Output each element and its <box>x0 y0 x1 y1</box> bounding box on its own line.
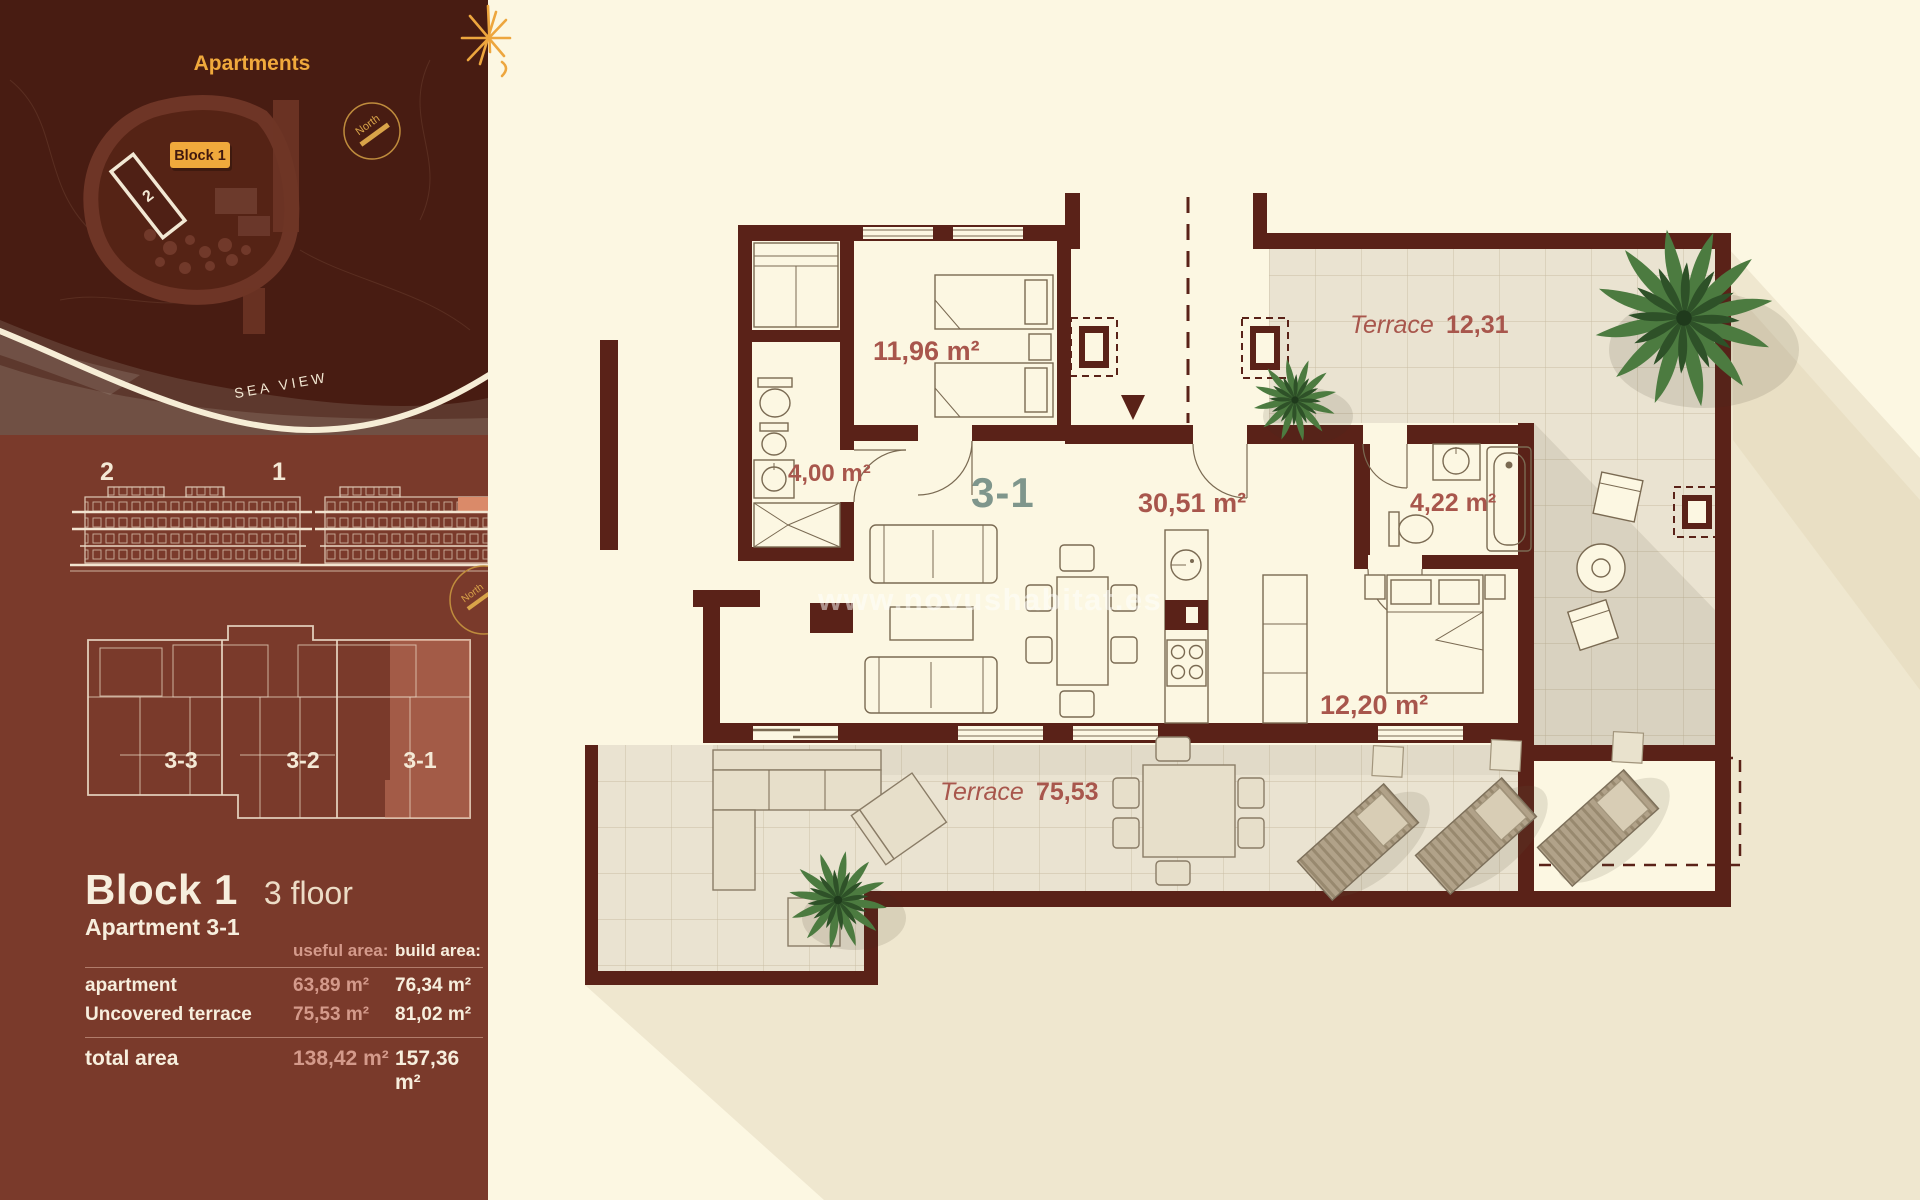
upper-terrace-area: 12,31 <box>1446 311 1509 339</box>
sidebar: 2 Block 1 North <box>0 0 488 1200</box>
north-small-label: North <box>460 582 486 605</box>
row-build-value: 81,02 m² <box>395 1004 483 1026</box>
north-compass-small-icon: North <box>450 566 488 634</box>
highlight-top-floor <box>458 497 488 511</box>
site-map-svg: 2 Block 1 North <box>0 0 488 435</box>
map-title: Apartments <box>194 52 311 75</box>
upper-terrace-name: Terrace <box>1350 311 1434 339</box>
lower-terrace-area: 75,53 <box>1036 778 1099 806</box>
floor-subtitle: 3 floor <box>264 875 353 912</box>
row-label: Uncovered terrace <box>85 1004 293 1026</box>
bedroom2-area-label: 12,20 m² <box>1320 690 1428 720</box>
table-divider-bottom <box>85 1037 483 1038</box>
total-label: total area <box>85 1047 293 1071</box>
row-build-value: 76,34 m² <box>395 975 483 997</box>
block-title: Block 1 <box>85 866 238 914</box>
elevation-1-label: 1 <box>272 458 286 486</box>
table-divider-top <box>85 967 483 968</box>
overview-unit-3-1: 3-1 <box>403 747 436 773</box>
floor-plan-panel: 11,96 m² 4,00 m² 3-1 30,51 m² 4,22 m² 12… <box>488 0 1920 1200</box>
block1-badge-label: Block 1 <box>174 148 226 164</box>
unit-number-label: 3-1 <box>971 469 1035 516</box>
total-build-value: 157,36 m² <box>395 1047 483 1095</box>
area-table: useful area: build area: apartment 63,89… <box>85 941 483 1095</box>
floor-plan-svg: 11,96 m² 4,00 m² 3-1 30,51 m² 4,22 m² 12… <box>488 0 1920 1200</box>
watermark: www.novushabitat.es <box>817 582 1162 617</box>
total-useful-value: 138,42 m² <box>293 1047 395 1071</box>
bathroom2-area-label: 4,22 m² <box>1410 489 1496 517</box>
block1-badge: Block 1 <box>170 142 232 171</box>
floor-overview-plan: 3-3 3-2 3-1 <box>88 626 470 818</box>
overview-unit-3-3: 3-3 <box>164 747 197 773</box>
unit-3-1-highlight <box>385 640 470 818</box>
table-row-apartment: apartment 63,89 m² 76,34 m² <box>85 975 483 997</box>
apartment-title: Apartment 3-1 <box>85 914 240 941</box>
row-useful-value: 75,53 m² <box>293 1004 395 1026</box>
starburst-icon <box>458 4 524 80</box>
elevation-building-1: 1 <box>272 458 488 563</box>
site-map-panel: 2 Block 1 North <box>0 0 488 435</box>
elevations-overview-svg: 2 1 <box>0 435 488 855</box>
block-floor-heading: Block 1 3 floor <box>85 866 353 914</box>
area-table-header: useful area: build area: <box>85 941 483 967</box>
bathroom1-area-label: 4,00 m² <box>788 460 871 487</box>
brochure-page: 2 Block 1 North <box>0 0 1920 1200</box>
lower-terrace-name: Terrace <box>940 778 1024 806</box>
elevation-2-label: 2 <box>100 458 114 486</box>
overview-unit-3-2: 3-2 <box>286 747 319 773</box>
bedroom1-area-label: 11,96 m² <box>873 336 980 366</box>
living-area-label: 30,51 m² <box>1138 488 1246 518</box>
useful-area-header: useful area: <box>293 941 395 961</box>
table-row-total: total area 138,42 m² 157,36 m² <box>85 1047 483 1095</box>
row-label: apartment <box>85 975 293 997</box>
row-useful-value: 63,89 m² <box>293 975 395 997</box>
table-row-terrace: Uncovered terrace 75,53 m² 81,02 m² <box>85 1004 483 1026</box>
build-area-header: build area: <box>395 941 483 961</box>
kitchen <box>1165 530 1208 723</box>
